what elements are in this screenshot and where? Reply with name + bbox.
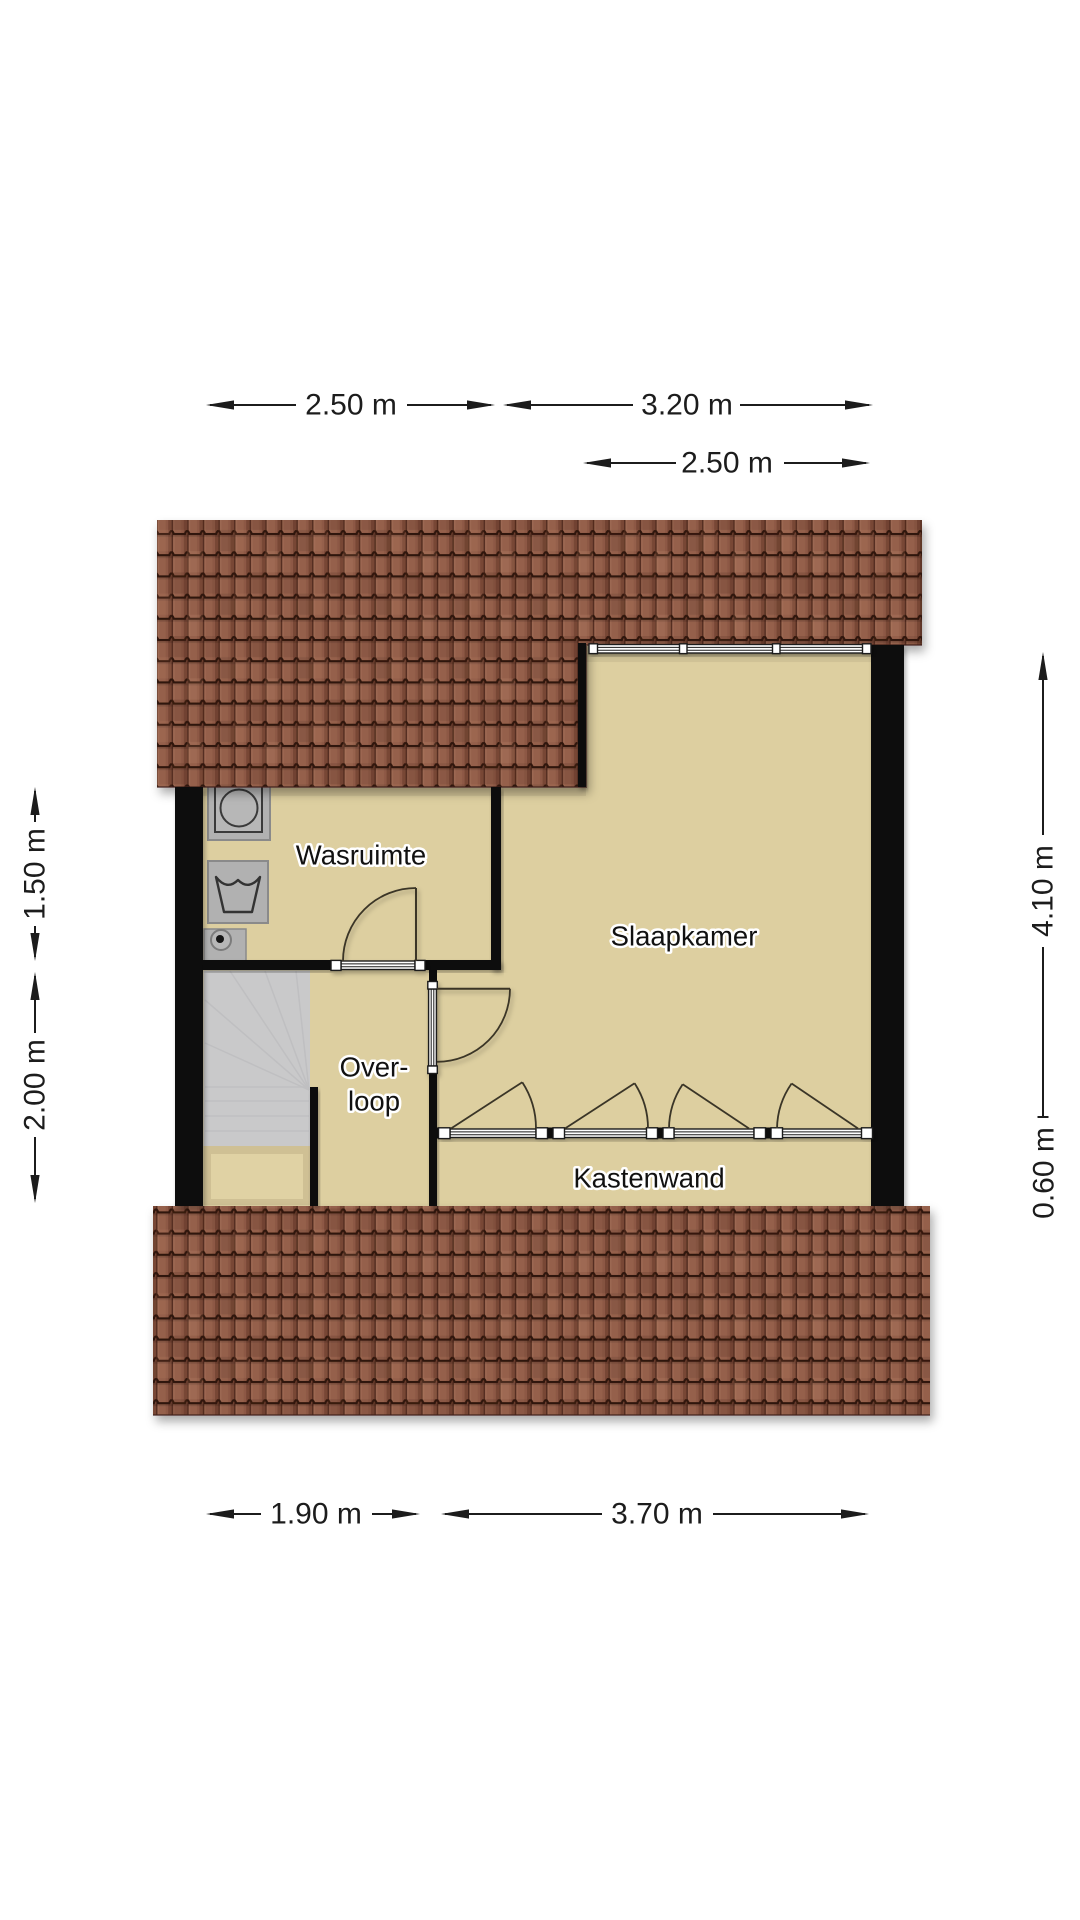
svg-text:1.90 m: 1.90 m bbox=[270, 1498, 362, 1531]
svg-text:Kastenwand: Kastenwand bbox=[573, 1163, 724, 1194]
svg-text:4.10 m: 4.10 m bbox=[1027, 845, 1060, 937]
svg-text:Wasruimte: Wasruimte bbox=[296, 840, 426, 871]
svg-text:3.20 m: 3.20 m bbox=[641, 389, 733, 422]
svg-text:3.70 m: 3.70 m bbox=[611, 1498, 703, 1531]
svg-text:Slaapkamer: Slaapkamer bbox=[611, 921, 758, 952]
svg-text:loop: loop bbox=[348, 1086, 400, 1117]
svg-text:2.00 m: 2.00 m bbox=[19, 1039, 52, 1131]
svg-text:Over-: Over- bbox=[340, 1052, 409, 1083]
svg-text:0.60 m: 0.60 m bbox=[1028, 1127, 1061, 1219]
svg-text:1.50 m: 1.50 m bbox=[19, 828, 52, 920]
svg-text:2.50 m: 2.50 m bbox=[681, 447, 773, 480]
svg-text:2.50 m: 2.50 m bbox=[305, 389, 397, 422]
